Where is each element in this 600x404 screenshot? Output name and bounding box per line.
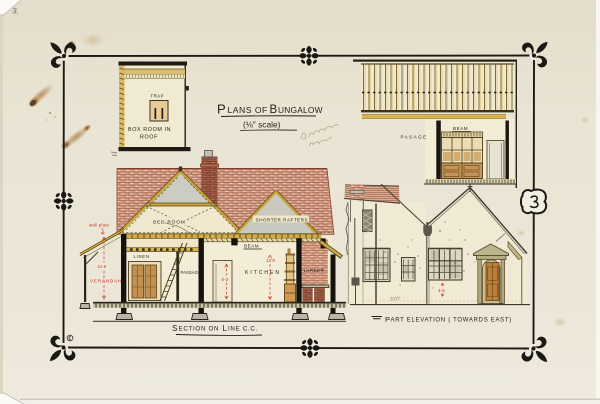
svg-text:TRAP: TRAP — [151, 94, 164, 99]
svg-text:L: L — [223, 324, 228, 333]
svg-text:31'0": 31'0" — [390, 296, 401, 303]
svg-text:S: S — [172, 324, 177, 333]
svg-text:12'9: 12'9 — [266, 258, 275, 264]
svg-text:BEAM: BEAM — [244, 244, 259, 249]
svg-text:3.: 3. — [12, 6, 20, 16]
svg-text:LANS OF: LANS OF — [228, 105, 268, 115]
svg-text:LARDER: LARDER — [304, 268, 325, 273]
svg-text:P: P — [385, 315, 390, 324]
svg-text:4-6: 4-6 — [438, 288, 445, 293]
svg-text:ROOF: ROOF — [140, 135, 158, 141]
svg-text:11-6: 11-6 — [98, 264, 107, 269]
svg-text:P: P — [217, 102, 226, 117]
svg-text:ECTION ON: ECTION ON — [179, 326, 220, 333]
svg-text:BEAM: BEAM — [453, 126, 468, 131]
svg-text:6-3: 6-3 — [222, 277, 229, 282]
svg-text:BED ROOM: BED ROOM — [153, 220, 186, 226]
svg-text:wall plate: wall plate — [89, 223, 110, 228]
svg-text:LINEN: LINEN — [134, 254, 150, 259]
svg-text:BOX ROOM IN: BOX ROOM IN — [128, 127, 171, 133]
svg-text:INE C.C.: INE C.C. — [228, 326, 258, 333]
svg-text:PASSAGE: PASSAGE — [181, 270, 202, 275]
svg-text:SHORTER RAFTERS: SHORTER RAFTERS — [256, 218, 309, 223]
svg-text:KITCHEN: KITCHEN — [245, 270, 281, 276]
svg-text:PASAGE: PASAGE — [401, 135, 428, 140]
svg-text:ART ELEVATION ( TOWARDS EAST): ART ELEVATION ( TOWARDS EAST) — [391, 318, 512, 324]
svg-text:(⅛″ scale): (⅛″ scale) — [243, 120, 281, 130]
svg-text:B: B — [270, 104, 278, 116]
svg-text:UNGALOW: UNGALOW — [278, 105, 323, 115]
svg-text:VERANDAH: VERANDAH — [90, 279, 122, 284]
